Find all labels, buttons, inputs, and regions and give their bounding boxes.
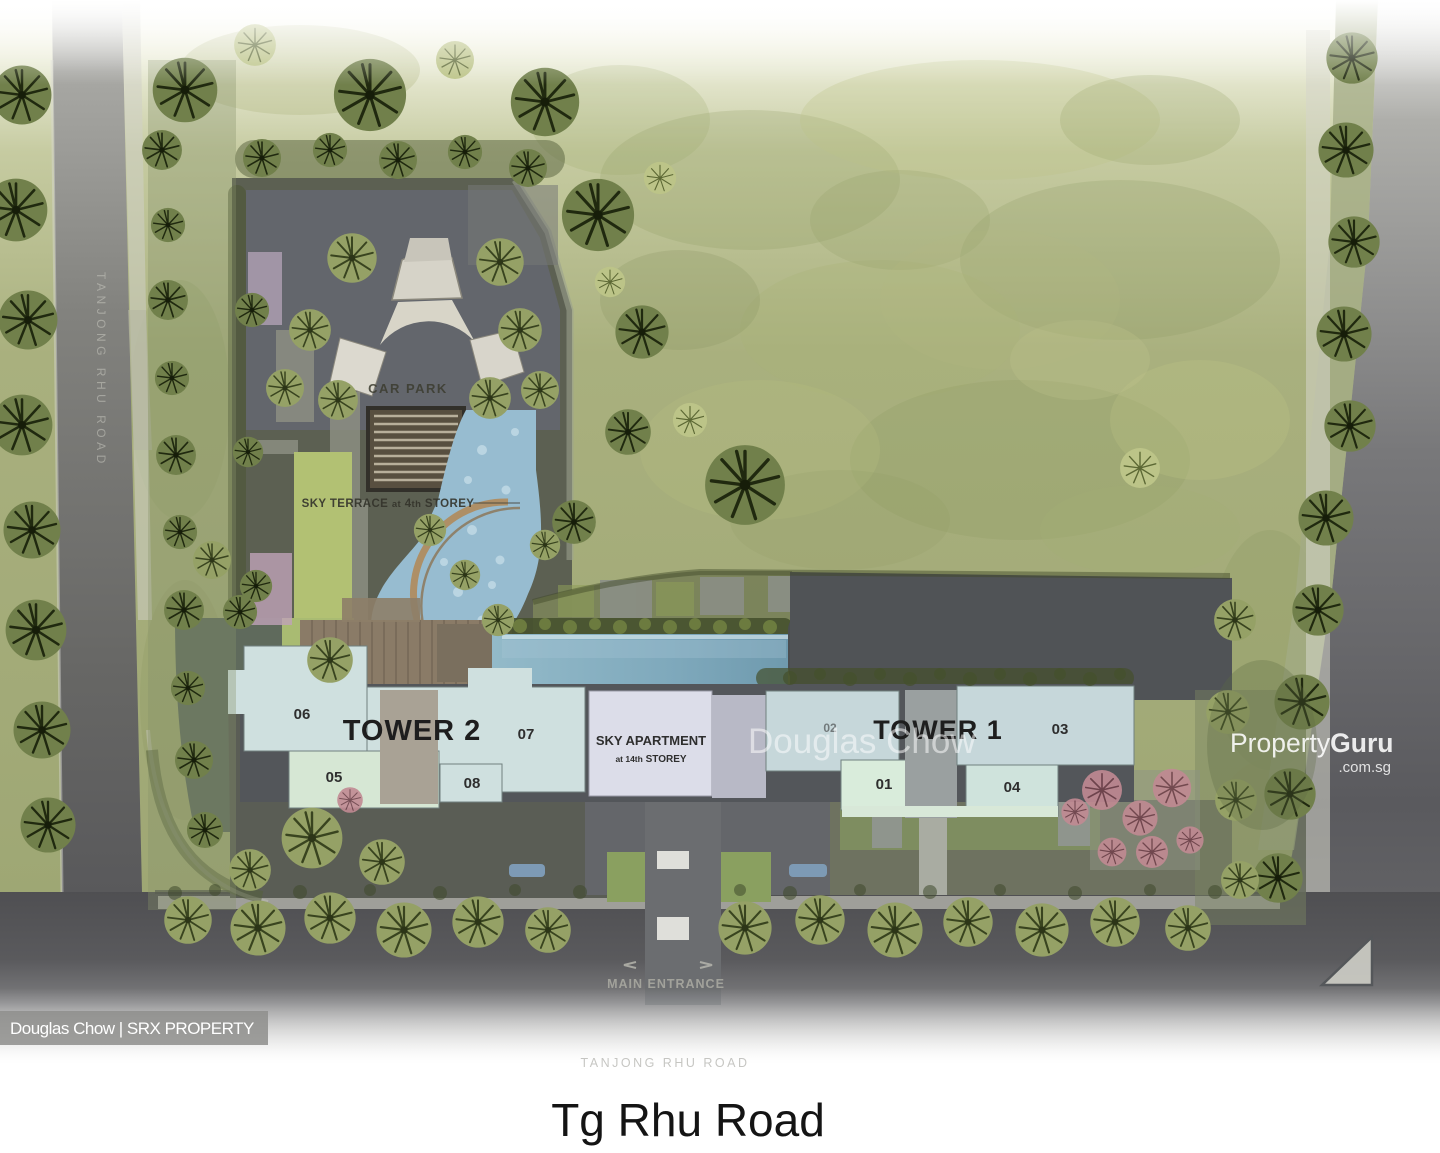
svg-text:Douglas Chow | SRX PROPERTY: Douglas Chow | SRX PROPERTY xyxy=(10,1019,254,1038)
svg-text:07: 07 xyxy=(518,726,535,743)
svg-text:TANJONG RHU ROAD: TANJONG RHU ROAD xyxy=(581,1056,750,1070)
svg-text:05: 05 xyxy=(326,769,343,786)
svg-text:04: 04 xyxy=(1004,779,1021,796)
svg-text:06: 06 xyxy=(294,706,311,723)
svg-text:CAR PARK: CAR PARK xyxy=(368,381,448,396)
svg-text:Douglas Chow: Douglas Chow xyxy=(748,722,976,761)
svg-text:Tg Rhu Road: Tg Rhu Road xyxy=(551,1094,825,1146)
svg-text:SKY TERRACE at 4th STOREY: SKY TERRACE at 4th STOREY xyxy=(302,498,475,510)
svg-text:01: 01 xyxy=(876,776,893,793)
svg-text:TOWER 2: TOWER 2 xyxy=(343,715,482,747)
svg-text:08: 08 xyxy=(464,775,481,792)
svg-text:03: 03 xyxy=(1052,721,1069,738)
svg-text:PropertyGuru: PropertyGuru xyxy=(1230,728,1393,758)
svg-text:at 14th STOREY: at 14th STOREY xyxy=(615,754,686,765)
svg-text:.com.sg: .com.sg xyxy=(1338,759,1391,776)
svg-text:SKY APARTMENT: SKY APARTMENT xyxy=(596,733,706,748)
svg-text:TANJONG RHU ROAD: TANJONG RHU ROAD xyxy=(94,272,108,468)
